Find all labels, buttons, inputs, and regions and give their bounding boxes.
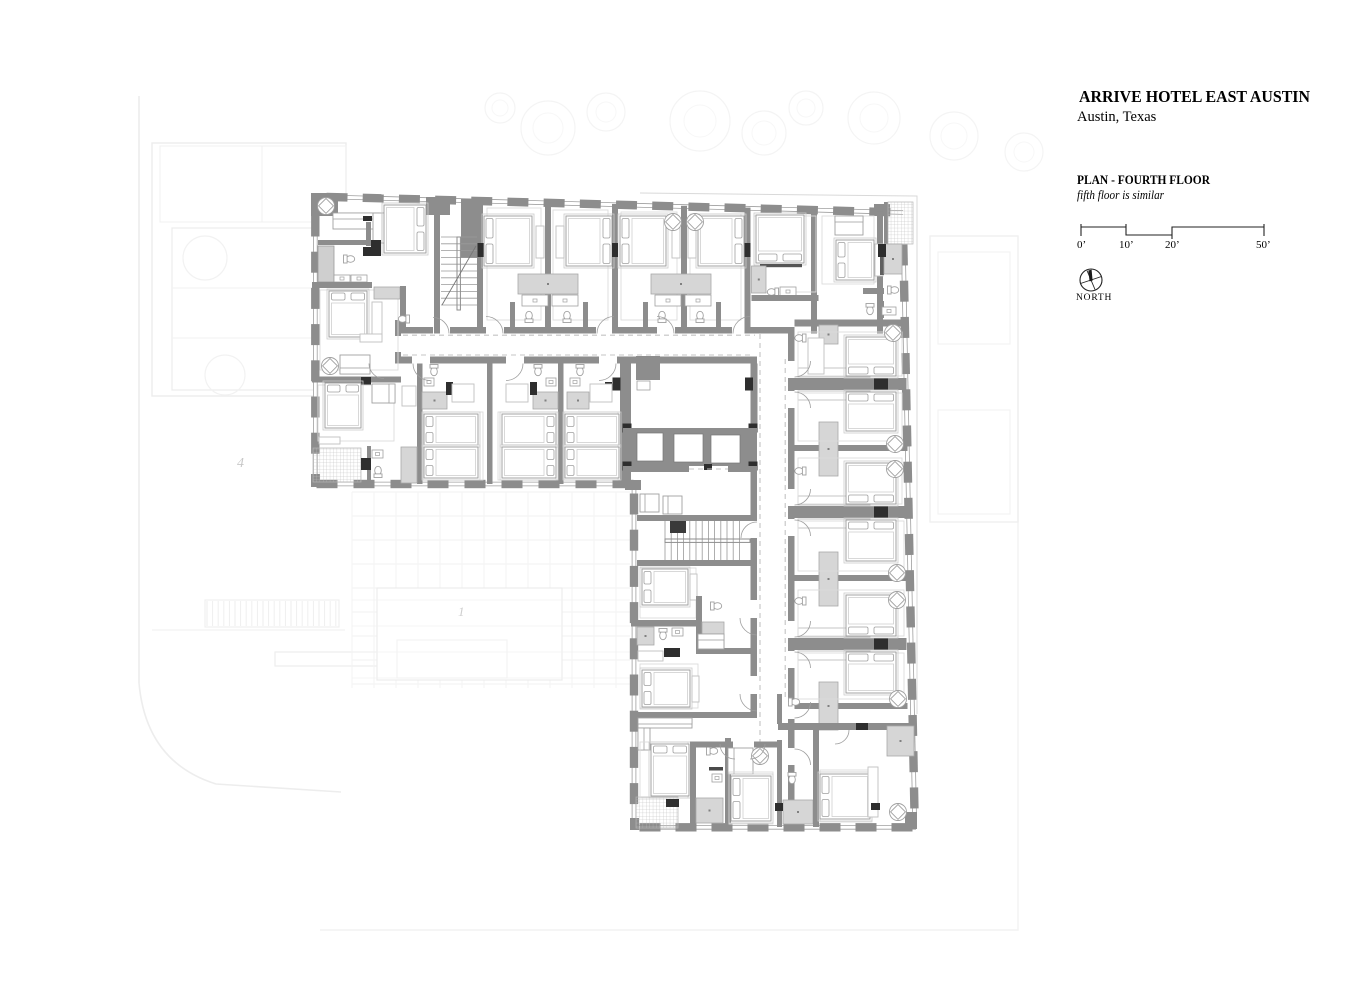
- svg-text:10’: 10’: [1119, 239, 1134, 251]
- svg-text:ARRIVE HOTEL EAST AUSTIN: ARRIVE HOTEL EAST AUSTIN: [1079, 87, 1311, 106]
- svg-text:NORTH: NORTH: [1076, 293, 1112, 303]
- svg-text:PLAN - FOURTH FLOOR: PLAN - FOURTH FLOOR: [1077, 173, 1211, 187]
- svg-text:fifth floor is similar: fifth floor is similar: [1077, 188, 1164, 202]
- svg-text:0’: 0’: [1077, 239, 1086, 251]
- svg-text:Austin, Texas: Austin, Texas: [1077, 109, 1157, 125]
- svg-text:1: 1: [458, 604, 465, 619]
- svg-text:20’: 20’: [1165, 239, 1180, 251]
- svg-text:4: 4: [237, 456, 244, 471]
- svg-text:50’: 50’: [1256, 239, 1271, 251]
